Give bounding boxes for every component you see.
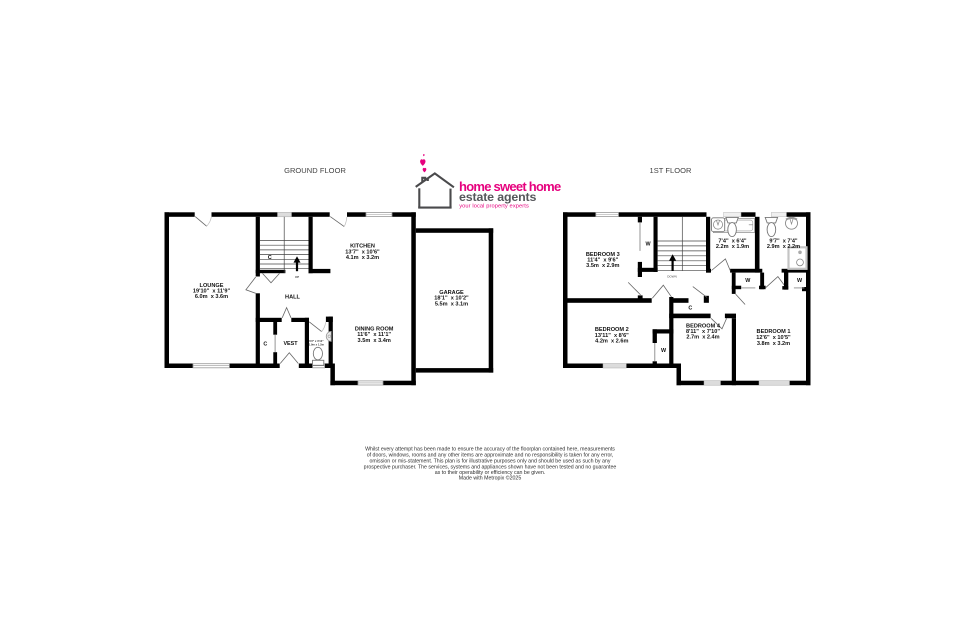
svg-text:1ST FLOOR: 1ST FLOOR xyxy=(650,166,693,175)
svg-text:W: W xyxy=(645,242,651,248)
svg-text:Whilst every attempt has been: Whilst every attempt has been made to en… xyxy=(365,446,615,452)
svg-text:C: C xyxy=(268,255,272,261)
svg-text:estate agents: estate agents xyxy=(459,190,537,204)
svg-text:C: C xyxy=(688,306,692,312)
svg-text:UP: UP xyxy=(295,275,299,279)
svg-text:W: W xyxy=(745,278,751,284)
svg-text:of doors, windows, rooms and a: of doors, windows, rooms and any other i… xyxy=(367,452,614,458)
svg-text:3.5m x 2.9m: 3.5m x 2.9m xyxy=(586,263,619,269)
svg-text:3.8m x 3.2m: 3.8m x 3.2m xyxy=(757,341,790,347)
svg-text:C: C xyxy=(263,342,267,348)
svg-text:4.2m x 2.6m: 4.2m x 2.6m xyxy=(595,338,628,344)
svg-text:Made with Metropix ©2025: Made with Metropix ©2025 xyxy=(459,475,522,482)
svg-text:W: W xyxy=(661,348,667,354)
svg-text:your local property experts: your local property experts xyxy=(459,203,529,209)
svg-text:6'2" x 3'10": 6'2" x 3'10" xyxy=(309,339,324,343)
svg-text:3.5m x 3.4m: 3.5m x 3.4m xyxy=(358,338,391,344)
svg-text:W: W xyxy=(797,278,803,284)
svg-text:GROUND FLOOR: GROUND FLOOR xyxy=(284,166,346,175)
svg-text:2.9m x 2.2m: 2.9m x 2.2m xyxy=(767,244,800,250)
svg-text:6.0m x 3.6m: 6.0m x 3.6m xyxy=(195,294,228,300)
svg-text:2.7m x 2.4m: 2.7m x 2.4m xyxy=(686,335,719,341)
svg-text:2.2m x 1.9m: 2.2m x 1.9m xyxy=(716,244,749,250)
svg-text:4.1m x 3.2m: 4.1m x 3.2m xyxy=(346,255,379,261)
svg-text:VEST: VEST xyxy=(283,341,298,347)
svg-text:1.9m x 1.2m: 1.9m x 1.2m xyxy=(309,343,325,347)
svg-text:5.5m x 3.1m: 5.5m x 3.1m xyxy=(435,301,468,307)
svg-text:BEDROOM 1: BEDROOM 1 xyxy=(757,329,791,335)
svg-text:DOWN: DOWN xyxy=(667,275,677,279)
svg-text:HALL: HALL xyxy=(285,295,300,301)
